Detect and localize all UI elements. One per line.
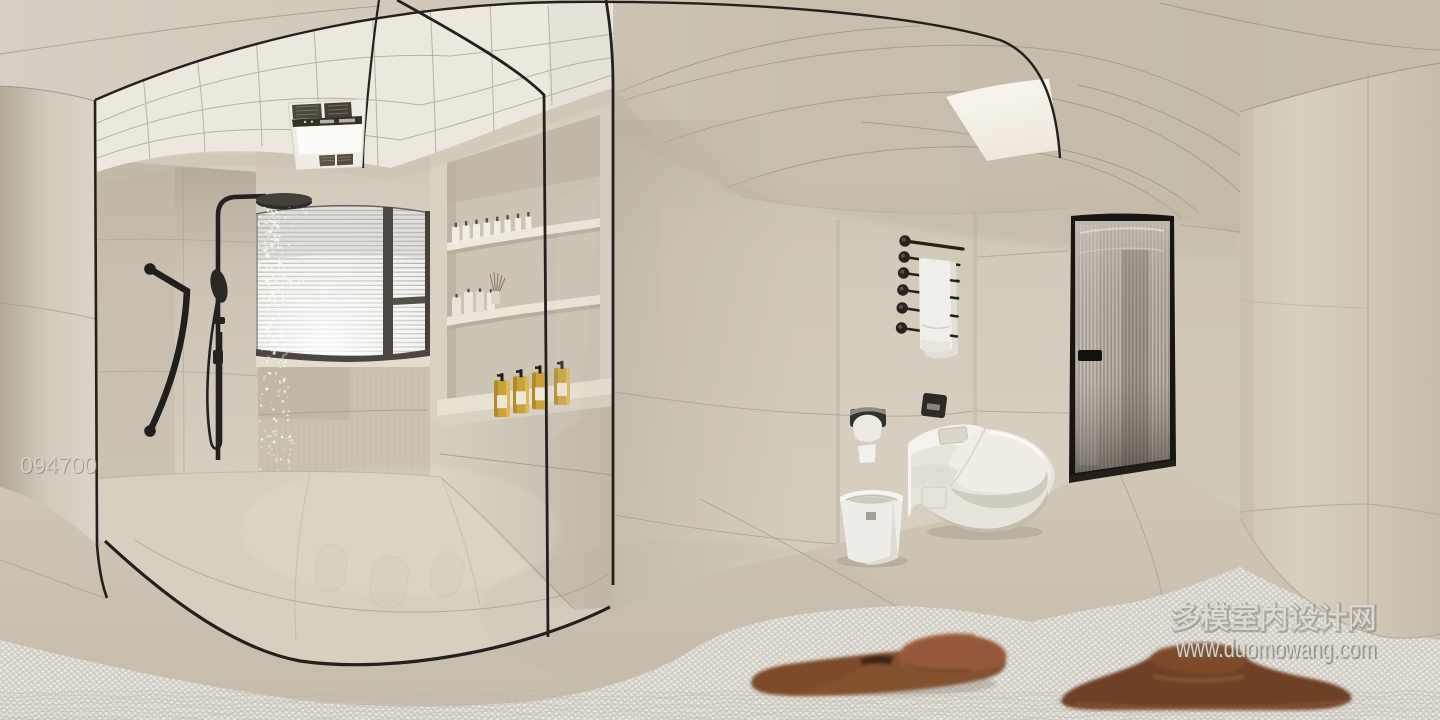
svg-text:www.duomowang.com: www.duomowang.com xyxy=(1175,633,1376,663)
svg-text:094700: 094700 xyxy=(20,452,97,478)
